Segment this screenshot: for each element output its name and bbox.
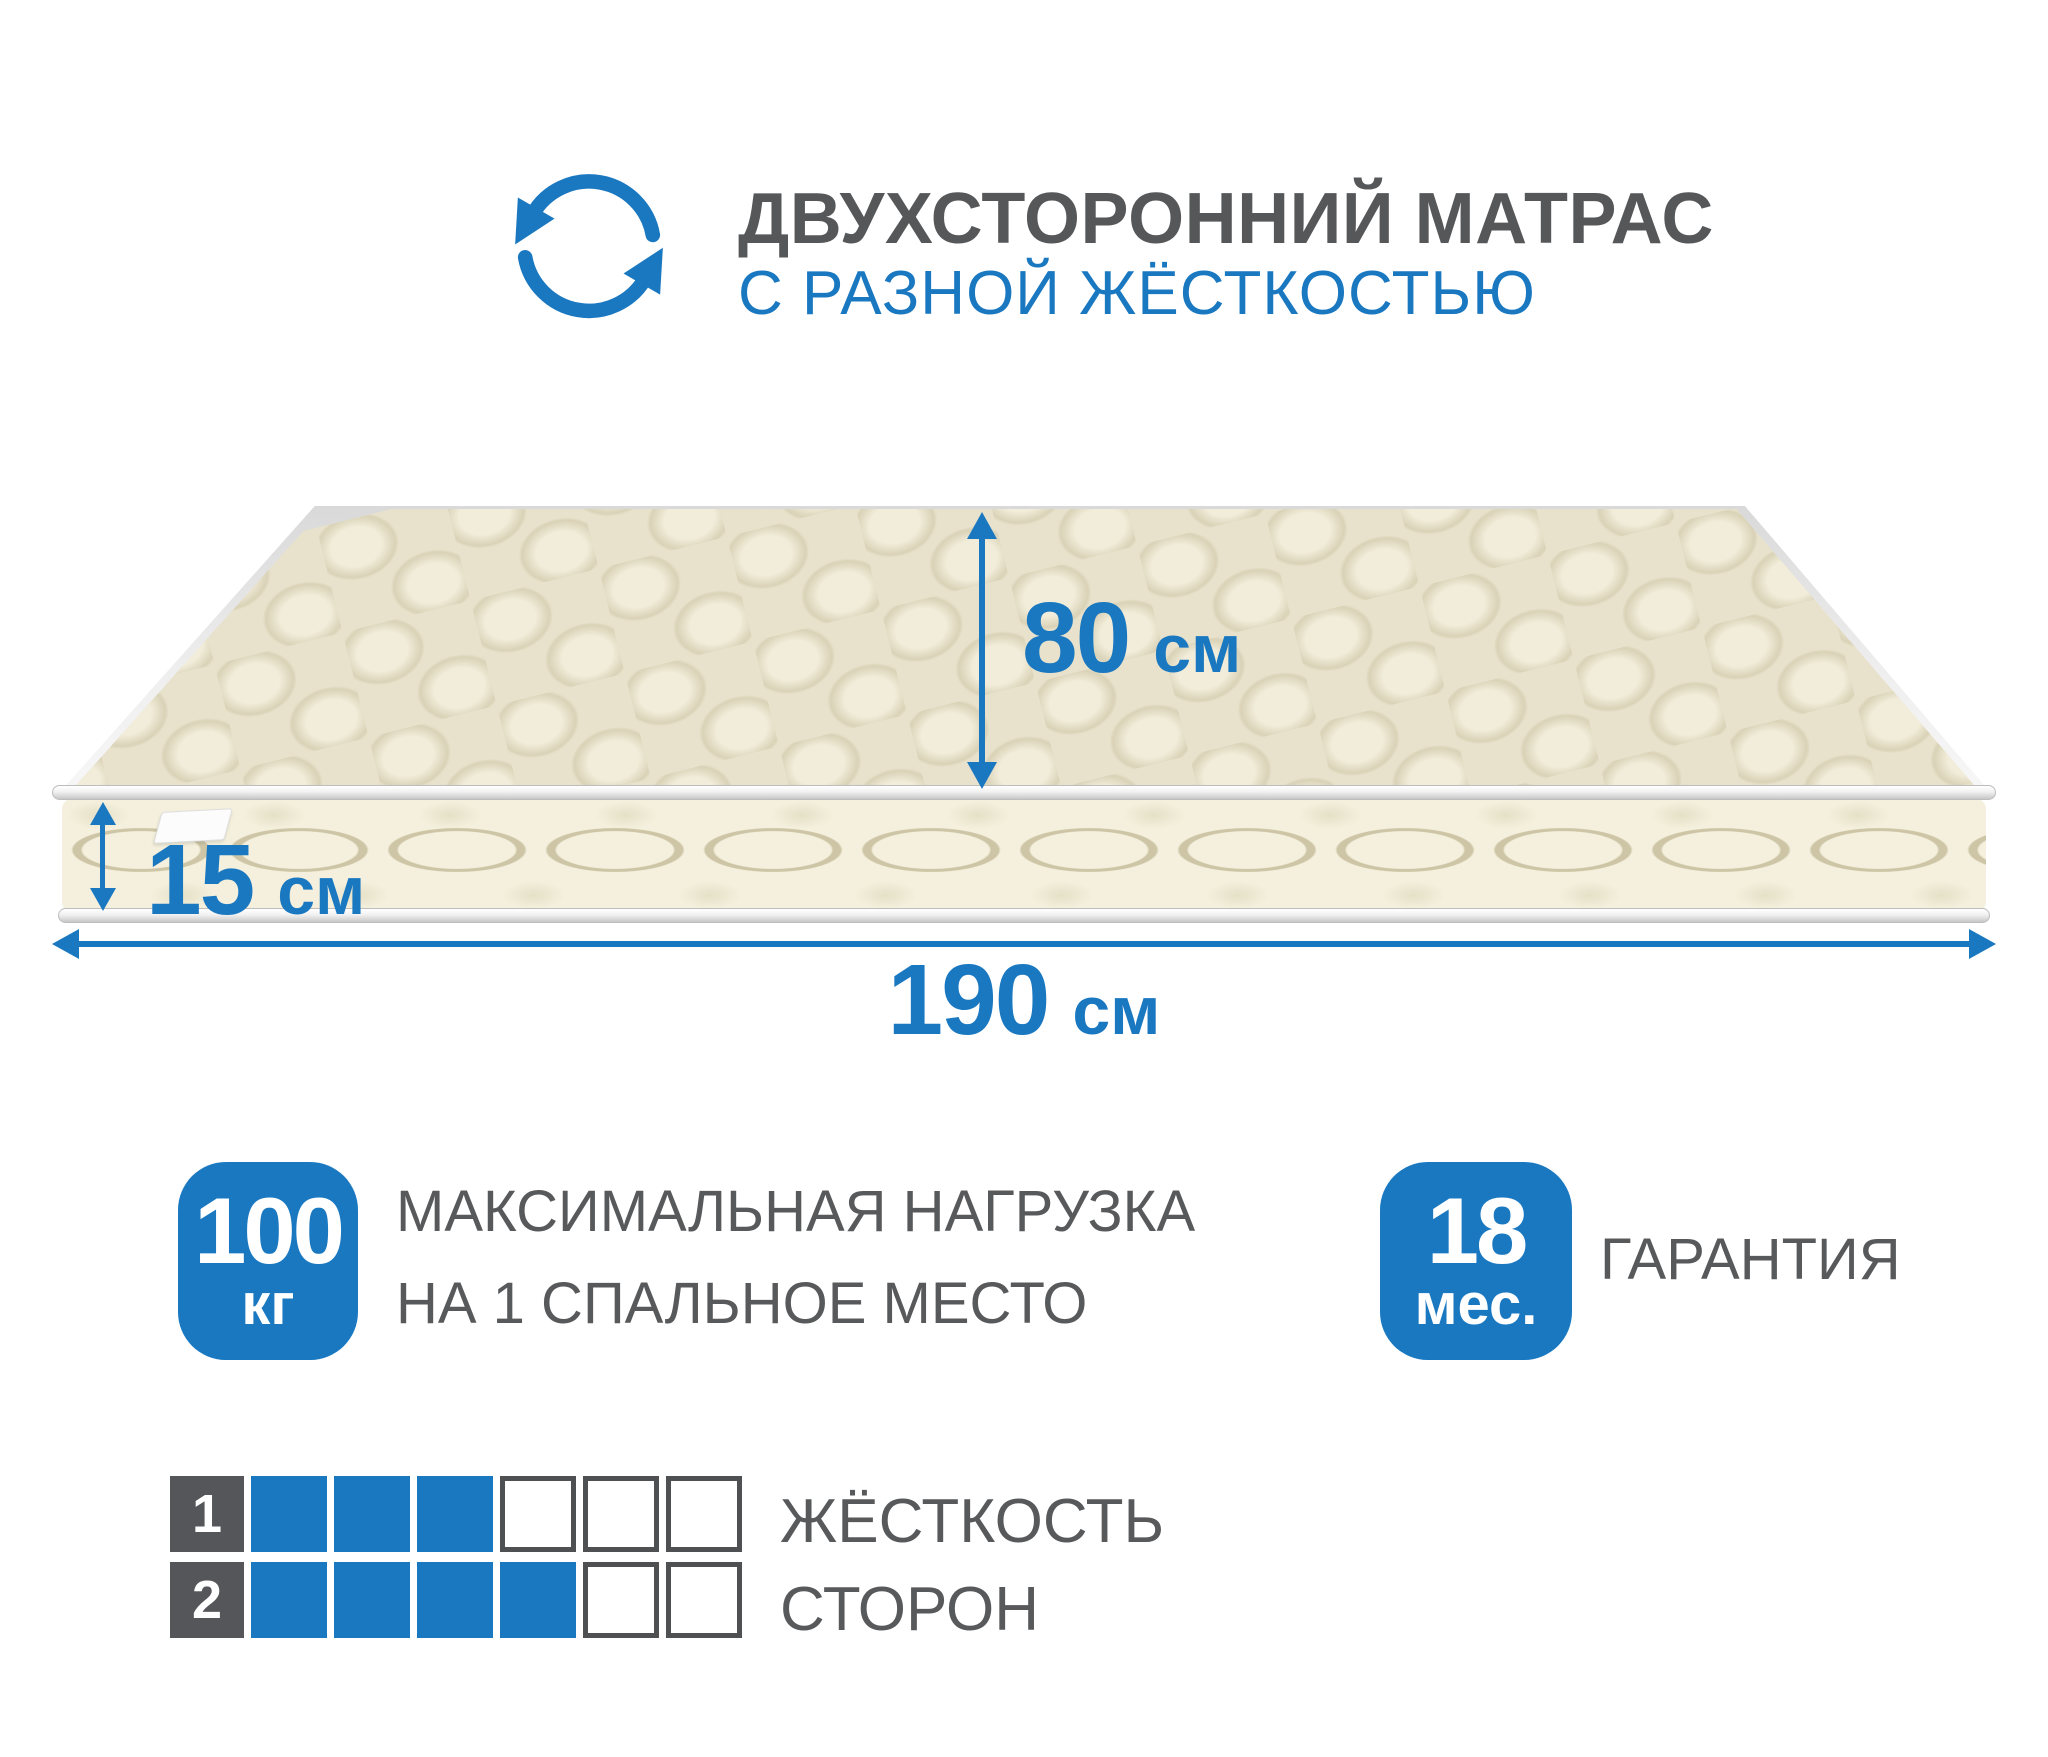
- rotate-arrows-icon: [505, 170, 673, 332]
- warranty-label: ГАРАНТИЯ: [1600, 1214, 1901, 1306]
- firmness-cell-empty: [500, 1476, 576, 1552]
- max-load-description-line1: МАКСИМАЛЬНАЯ НАГРУЗКА: [396, 1166, 1195, 1258]
- width-unit: см: [1153, 615, 1241, 683]
- arrow-down-icon: [967, 762, 997, 789]
- max-load-value: 100: [194, 1186, 342, 1275]
- firmness-cell-filled: [417, 1476, 493, 1552]
- mattress-top-piping: [52, 785, 1996, 800]
- warranty-badge: 18 мес.: [1380, 1162, 1572, 1360]
- max-load-badge: 100 кг: [178, 1162, 358, 1360]
- firmness-cell-empty: [583, 1476, 659, 1552]
- max-load-description-line2: НА 1 СПАЛЬНОЕ МЕСТО: [396, 1258, 1195, 1350]
- mattress-infographic: ДВУХСТОРОННИЙ МАТРАС С РАЗНОЙ ЖЁСТКОСТЬЮ…: [0, 0, 2048, 1757]
- firmness-cell-empty: [666, 1476, 742, 1552]
- firmness-title: ЖЁСТКОСТЬ СТОРОН: [780, 1478, 1164, 1654]
- firmness-cell-filled: [334, 1562, 410, 1638]
- max-load-unit: кг: [241, 1275, 294, 1336]
- arrow-down-icon: [90, 888, 116, 911]
- warranty-unit: мес.: [1415, 1275, 1538, 1336]
- length-unit: см: [1072, 977, 1160, 1045]
- length-value: 190: [888, 950, 1049, 1050]
- length-label: 190 см: [0, 950, 2048, 1050]
- firmness-title-line1: ЖЁСТКОСТЬ: [780, 1478, 1164, 1566]
- firmness-side-number: 2: [170, 1562, 244, 1638]
- firmness-side-number: 1: [170, 1476, 244, 1552]
- firmness-scale: 12: [170, 1476, 742, 1638]
- firmness-cell-empty: [666, 1562, 742, 1638]
- firmness-cell-filled: [334, 1476, 410, 1552]
- width-arrow: [979, 534, 985, 766]
- firmness-row: 2: [170, 1562, 742, 1638]
- page-subtitle: С РАЗНОЙ ЖЁСТКОСТЬЮ: [738, 258, 1536, 329]
- height-arrow: [100, 820, 105, 892]
- firmness-cell-filled: [251, 1476, 327, 1552]
- firmness-cell-empty: [583, 1562, 659, 1638]
- width-label: 80 см: [1022, 588, 1241, 688]
- page-title: ДВУХСТОРОННИЙ МАТРАС: [738, 178, 1714, 260]
- height-label: 15 см: [146, 830, 365, 930]
- height-value: 15: [146, 830, 253, 930]
- firmness-cell-filled: [500, 1562, 576, 1638]
- firmness-cell-filled: [251, 1562, 327, 1638]
- warranty-value: 18: [1427, 1186, 1526, 1275]
- width-value: 80: [1022, 588, 1129, 688]
- firmness-row: 1: [170, 1476, 742, 1552]
- max-load-description: МАКСИМАЛЬНАЯ НАГРУЗКА НА 1 СПАЛЬНОЕ МЕСТ…: [396, 1166, 1195, 1350]
- height-unit: см: [277, 857, 365, 925]
- firmness-title-line2: СТОРОН: [780, 1566, 1164, 1654]
- firmness-cell-filled: [417, 1562, 493, 1638]
